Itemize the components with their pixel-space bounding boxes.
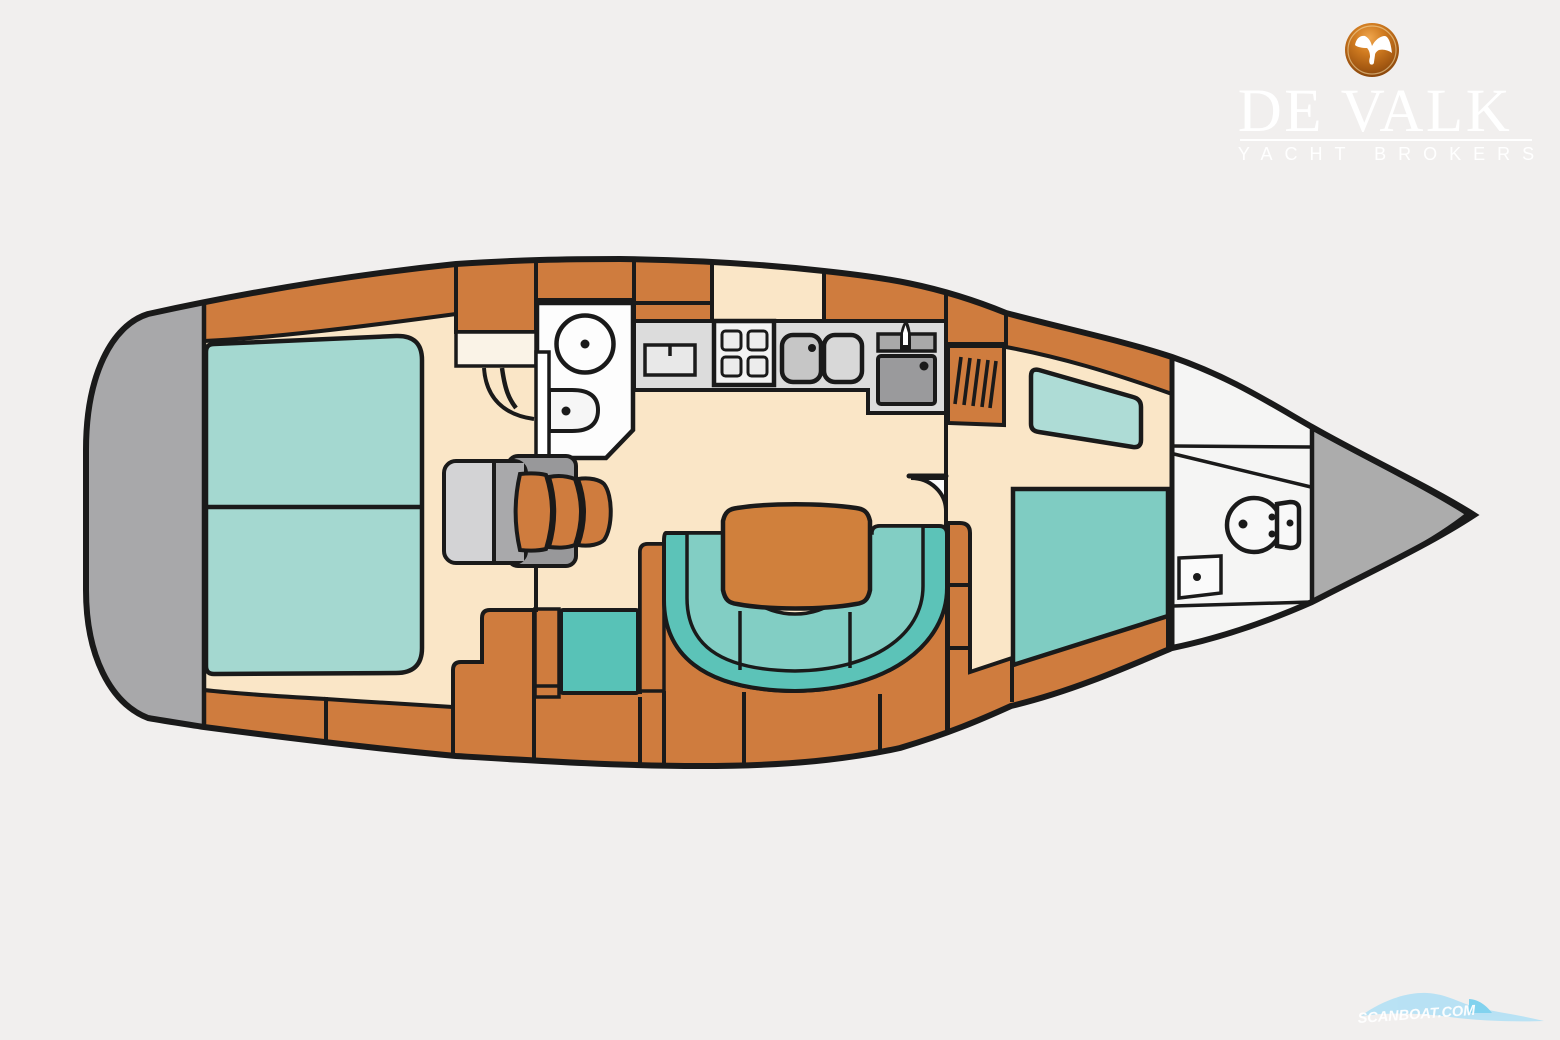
svg-text:DE VALK: DE VALK <box>1238 78 1513 145</box>
svg-text:YACHT BROKERS: YACHT BROKERS <box>1238 144 1546 164</box>
